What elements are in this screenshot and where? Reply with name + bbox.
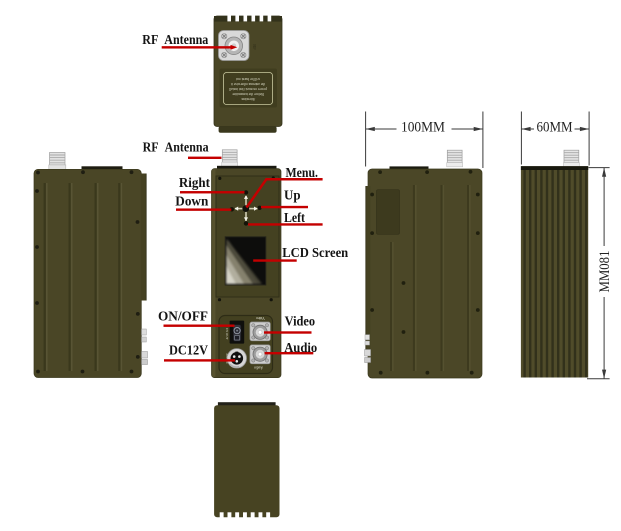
svg-text:RF Antenna: RF Antenna xyxy=(142,32,208,47)
svg-text:IN OUT: IN OUT xyxy=(225,328,229,340)
svg-text:Before the transmitter: Before the transmitter xyxy=(231,92,263,96)
svg-text:Menu.: Menu. xyxy=(286,165,319,180)
svg-text:Down: Down xyxy=(175,194,209,209)
svg-text:Video: Video xyxy=(285,313,316,328)
svg-text:will be burnt out: will be burnt out xyxy=(236,77,260,81)
svg-text:power on must first install: power on must first install xyxy=(229,87,267,91)
svg-text:Audio: Audio xyxy=(254,366,263,370)
svg-text:LCD Screen: LCD Screen xyxy=(282,245,349,260)
svg-text:RF Antenna: RF Antenna xyxy=(143,139,209,154)
svg-text:Left: Left xyxy=(284,210,306,225)
svg-text:Attention:: Attention: xyxy=(241,97,256,101)
svg-text:100MM: 100MM xyxy=(401,120,445,136)
svg-text:DC12V: DC12V xyxy=(225,352,229,363)
svg-text:RF: RF xyxy=(252,44,257,50)
svg-text:Up: Up xyxy=(284,188,301,203)
svg-text:DC12V: DC12V xyxy=(169,342,208,357)
svg-text:Video: Video xyxy=(256,316,265,320)
svg-text:Right: Right xyxy=(179,175,211,190)
svg-text:MM081: MM081 xyxy=(597,251,613,293)
svg-text:ON/OFF: ON/OFF xyxy=(158,308,208,323)
svg-text:60MM: 60MM xyxy=(537,120,573,136)
svg-text:the antenna otherwise it: the antenna otherwise it xyxy=(231,82,265,86)
